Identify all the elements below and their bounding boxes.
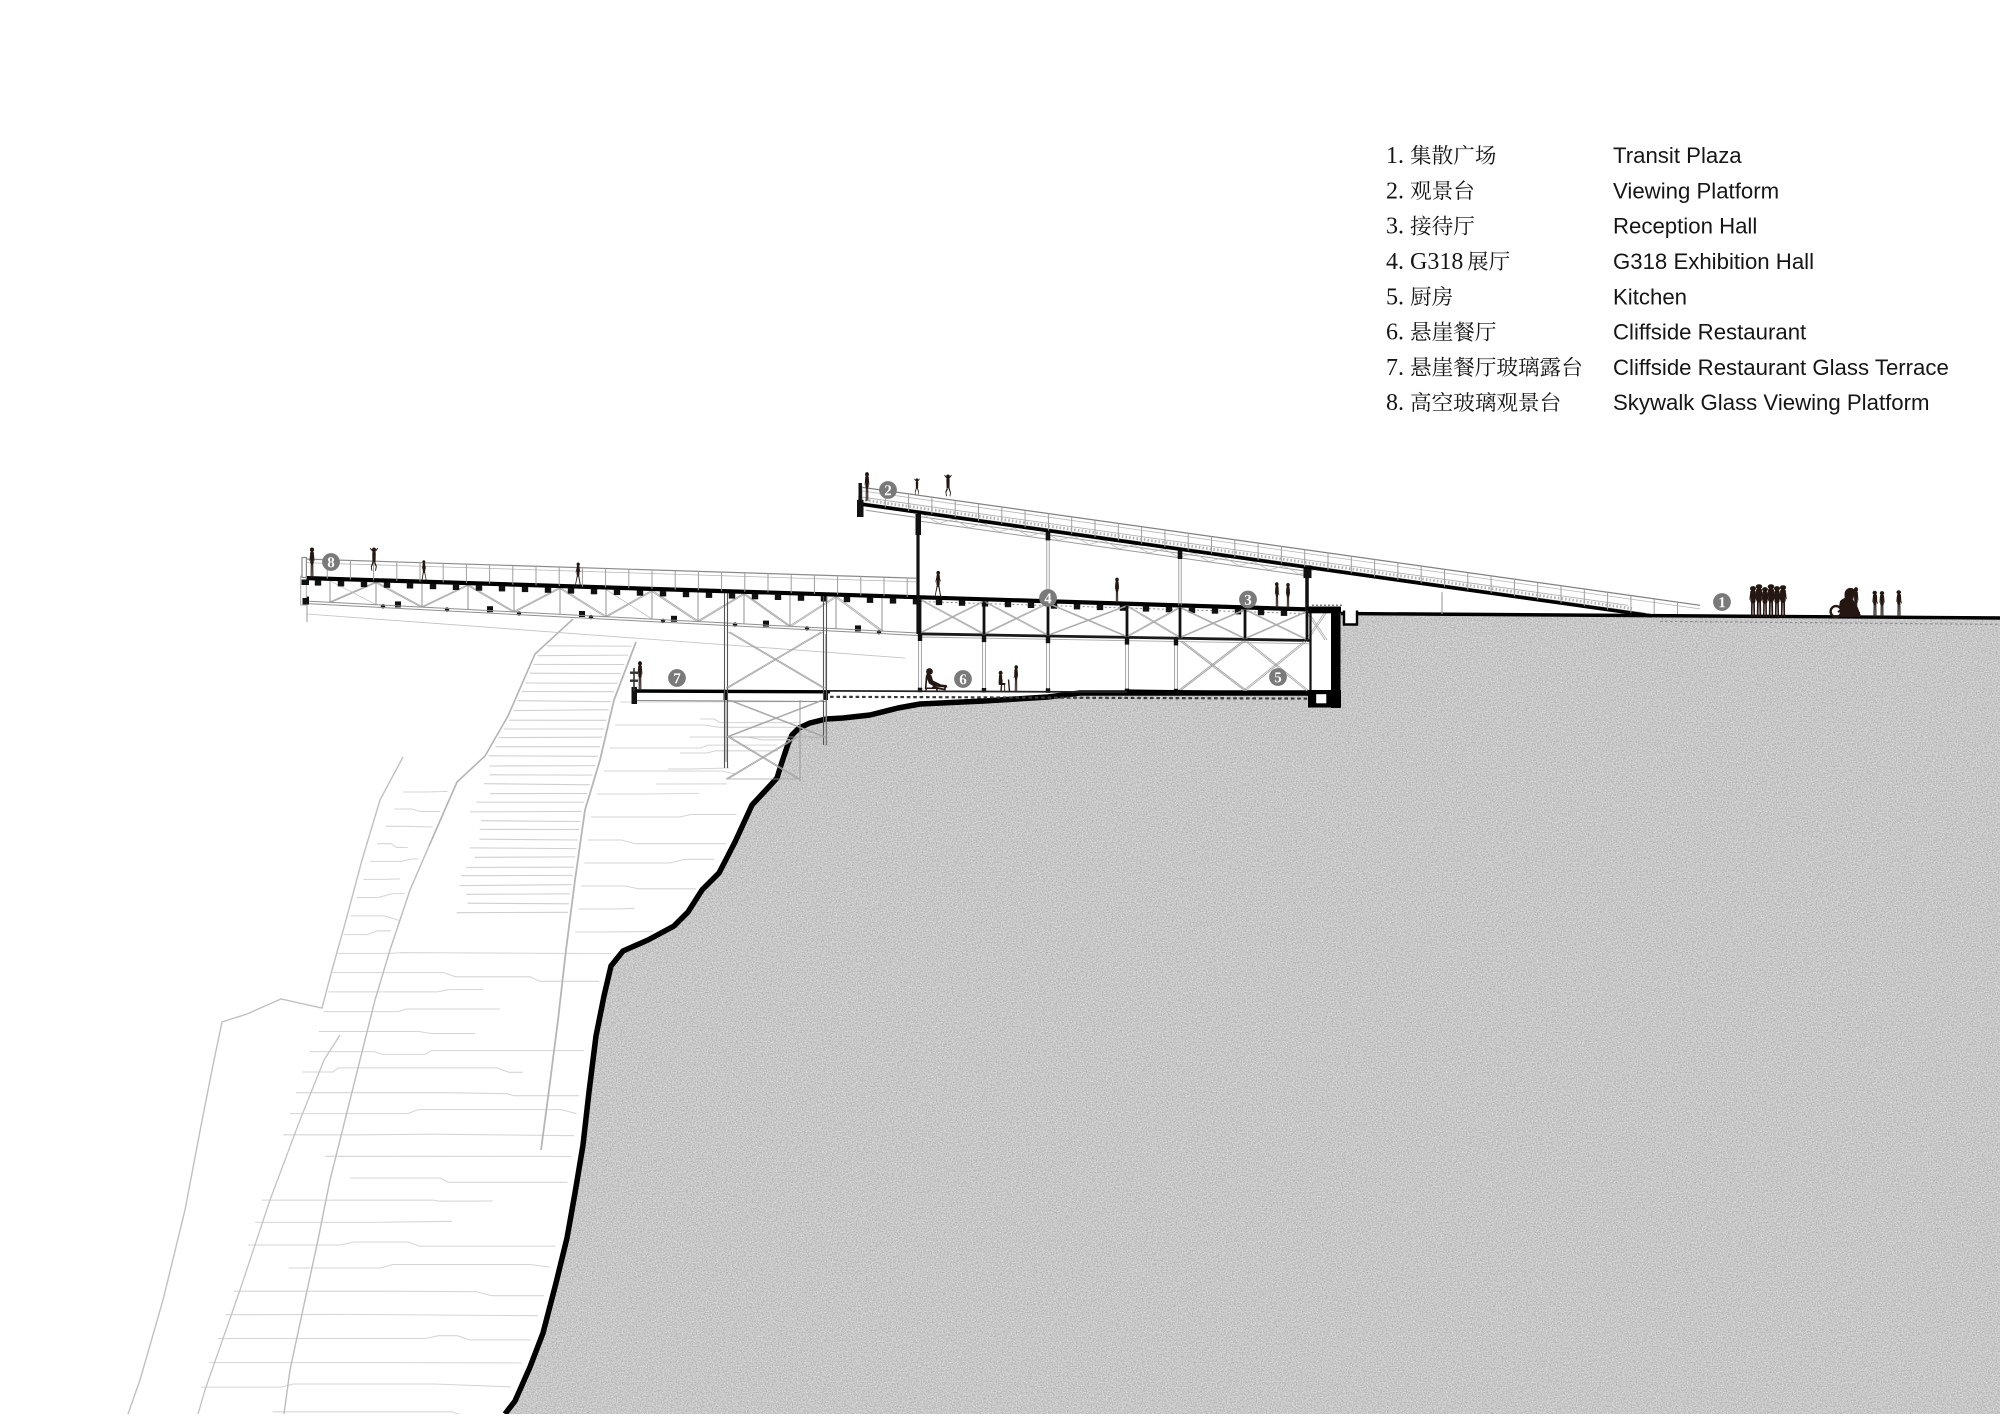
svg-text:G318: G318 [1410, 249, 1463, 275]
svg-text:Transit Plaza: Transit Plaza [1613, 143, 1742, 168]
svg-text:3.: 3. [1386, 214, 1404, 240]
svg-text:7.: 7. [1386, 355, 1404, 381]
svg-text:8.: 8. [1386, 390, 1404, 416]
svg-text:Cliffside Restaurant: Cliffside Restaurant [1613, 320, 1806, 345]
svg-text:Reception Hall: Reception Hall [1613, 214, 1757, 239]
svg-text:Kitchen: Kitchen [1613, 284, 1687, 309]
svg-text:Viewing Platform: Viewing Platform [1613, 178, 1779, 203]
svg-text:Skywalk Glass Viewing Platform: Skywalk Glass Viewing Platform [1613, 390, 1930, 415]
svg-text:2.: 2. [1386, 178, 1404, 204]
svg-text:1.: 1. [1386, 143, 1404, 169]
svg-text:Cliffside Restaurant Glass Ter: Cliffside Restaurant Glass Terrace [1613, 355, 1949, 380]
svg-text:6.: 6. [1386, 320, 1404, 346]
svg-text:5.: 5. [1386, 284, 1404, 310]
svg-text:G318 Exhibition Hall: G318 Exhibition Hall [1613, 249, 1814, 274]
svg-text:4.: 4. [1386, 249, 1404, 275]
